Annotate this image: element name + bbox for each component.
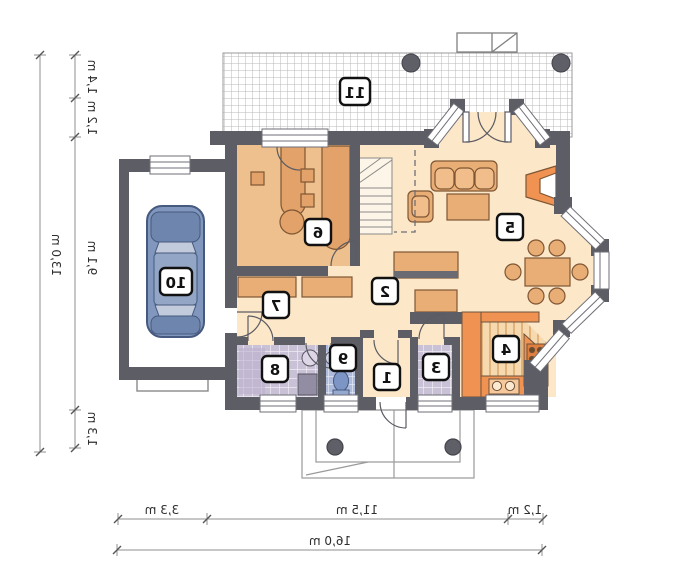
svg-text:4: 4 — [501, 341, 511, 359]
chimney-icon — [457, 33, 517, 52]
svg-text:10: 10 — [166, 274, 187, 292]
cabinet-icon — [251, 172, 264, 185]
room-badge-1: 1 — [374, 364, 400, 390]
window-garage — [150, 156, 190, 174]
column-icon — [445, 439, 461, 455]
room-badge-11: 11 — [340, 78, 370, 105]
room-badge-6: 6 — [305, 219, 331, 245]
column-icon — [402, 54, 420, 72]
svg-text:7: 7 — [271, 297, 281, 315]
dim-bottom-seg-2: 11,5 m — [336, 503, 378, 517]
room-badge-4: 4 — [493, 336, 519, 362]
room-badge-10: 10 — [160, 268, 192, 295]
dim-left-total: 13,0 m — [49, 234, 63, 276]
dim-left-seg-2: 1,2 m — [85, 101, 99, 136]
wardrobe-icon — [415, 290, 457, 312]
office-chair-icon — [280, 210, 304, 234]
coffee-table-icon — [447, 194, 489, 220]
room-badge-7: 7 — [263, 292, 289, 318]
svg-text:8: 8 — [270, 361, 280, 379]
toilet-icon — [333, 371, 349, 397]
cabinet-icon — [301, 194, 314, 207]
dim-bottom-total: 16,0 m — [309, 534, 351, 548]
window-dining-right — [594, 252, 609, 289]
dining-table-icon — [525, 258, 570, 286]
svg-text:11: 11 — [345, 84, 366, 102]
room-badge-8: 8 — [262, 356, 288, 382]
armchair-icon — [408, 191, 433, 222]
dim-left-seg-3: 9,1 m — [85, 241, 99, 276]
column-icon — [552, 54, 570, 72]
svg-text:2: 2 — [380, 283, 390, 301]
window-room3 — [418, 395, 452, 412]
room-badge-3: 3 — [423, 354, 449, 380]
floor-plan-drawing: 13,0 m 1,4 m 1,2 m 9,1 m 1,3 m 3,3 m 11,… — [0, 0, 700, 571]
svg-text:1: 1 — [382, 369, 392, 387]
floor-plan-page: 13,0 m 1,4 m 1,2 m 9,1 m 1,3 m 3,3 m 11,… — [0, 0, 700, 571]
washbasin-icon — [302, 350, 318, 366]
svg-text:5: 5 — [505, 219, 515, 237]
window-room9 — [324, 395, 358, 412]
svg-text:3: 3 — [431, 359, 441, 377]
dim-left-seg-4: 1,3 m — [85, 412, 99, 447]
tv-cabinet-icon — [394, 252, 458, 278]
svg-text:9: 9 — [338, 350, 348, 368]
dim-bottom-seg-1: 3,3 m — [145, 503, 180, 517]
washer-icon — [298, 374, 317, 395]
column-icon — [327, 439, 343, 455]
svg-text:6: 6 — [313, 224, 323, 242]
window-room8 — [260, 395, 296, 412]
room-badge-9: 9 — [330, 345, 356, 371]
dim-left-seg-1: 1,4 m — [85, 60, 99, 95]
room-badge-2: 2 — [372, 278, 398, 304]
cabinet-icon — [301, 169, 314, 182]
sofa-icon — [431, 161, 497, 191]
room-badge-5: 5 — [497, 214, 523, 240]
window-kitchen — [486, 395, 539, 412]
sink-icon — [489, 379, 519, 394]
dim-bottom-seg-3: 1,2 m — [508, 503, 543, 517]
window-room6 — [262, 129, 328, 147]
